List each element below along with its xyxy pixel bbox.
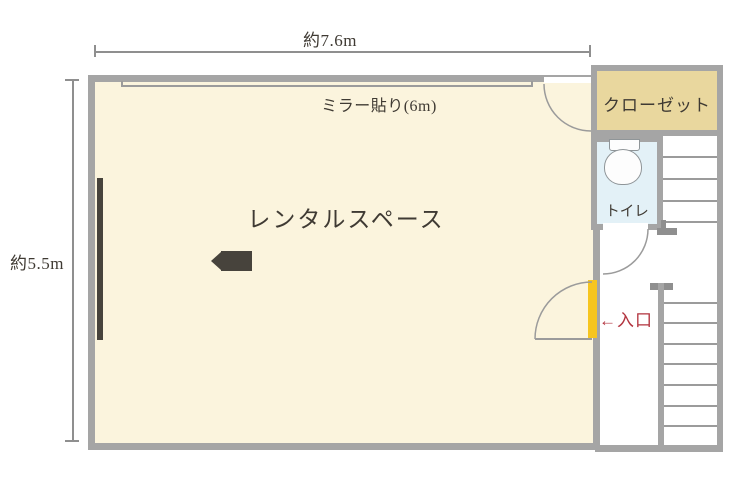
stair-step-line [664, 322, 717, 324]
stair-step-line [664, 363, 717, 365]
toilet-label: トイレ [597, 200, 657, 221]
stair-step-line [664, 343, 717, 345]
top-door-opening [544, 77, 591, 83]
hallway [600, 230, 658, 445]
closet-label: クローゼット [603, 86, 711, 116]
stair-step-line [663, 200, 717, 202]
entrance-door-highlight [588, 280, 597, 338]
stair-step-line [664, 425, 717, 427]
staircase-lower [664, 290, 717, 445]
height-dimension-tick-top [65, 79, 79, 81]
entrance-label: ←入口 [599, 306, 671, 331]
video-camera-icon [211, 251, 252, 271]
stair-railing-cap-upper [657, 228, 677, 235]
stair-railing-stub-upper [661, 220, 666, 229]
camera-body [221, 251, 252, 271]
closet-room: クローゼット [591, 65, 723, 136]
stair-step-line [664, 384, 717, 386]
stair-step-line [663, 178, 717, 180]
toilet-bowl [604, 149, 642, 185]
main-room [88, 75, 600, 450]
staircase-upper [663, 136, 717, 230]
width-dimension-line [95, 51, 591, 53]
wall-mirror-panel [97, 178, 103, 340]
height-dimension-line [72, 80, 74, 442]
stair-step-line [664, 405, 717, 407]
floor-plan: 約7.6m 約5.5m ミラー貼り(6m) レンタルスペース クローゼット トイ… [0, 0, 750, 498]
mirror-note-label: ミラー貼り(6m) [279, 92, 479, 116]
height-dimension-label: 約5.5m [0, 249, 64, 274]
stair-step-line [663, 221, 717, 223]
height-dimension-tick-bottom [65, 440, 79, 442]
stair-step-line [664, 302, 717, 304]
width-dimension-tick-right [589, 45, 591, 57]
stair-step-line [663, 156, 717, 158]
right-outer-wall [717, 65, 723, 452]
width-dimension-label: 約7.6m [95, 26, 565, 51]
toilet-room: トイレ [591, 136, 663, 230]
main-room-label: レンタルスペース [221, 200, 471, 234]
camera-lens-triangle [211, 252, 221, 270]
